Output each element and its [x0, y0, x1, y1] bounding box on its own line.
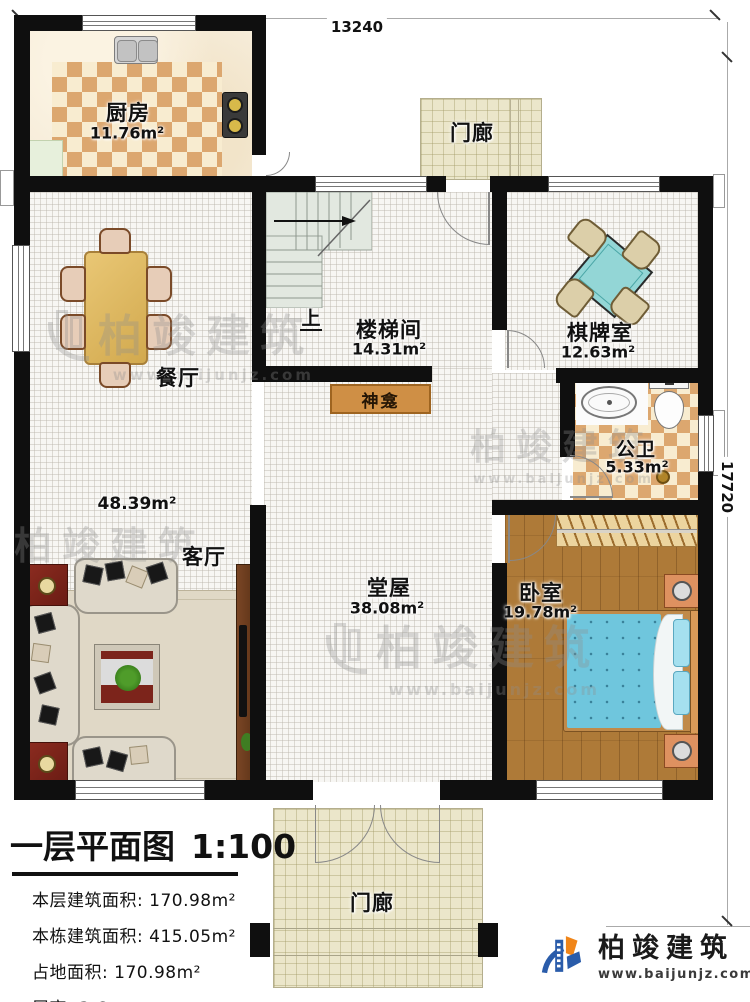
window-stairwell — [315, 176, 427, 192]
label-hall: 堂屋 — [367, 572, 411, 602]
wall-stair-left — [252, 192, 266, 382]
window-bedroom — [536, 780, 663, 800]
side-table — [24, 742, 68, 784]
label-stairwell-area: 14.31m² — [352, 340, 426, 359]
window-dining — [12, 245, 30, 352]
wall-left-lower — [14, 352, 30, 800]
wall-top-band-west — [14, 176, 315, 192]
window-sill — [0, 170, 14, 206]
wall-bedroom-left — [492, 563, 507, 800]
label-bathroom-area: 5.33m² — [605, 458, 668, 477]
sofa-pillow — [82, 746, 103, 767]
window-living — [75, 780, 205, 800]
door-entry-top-leaf — [488, 192, 490, 245]
label-chess-area: 12.63m² — [561, 343, 635, 362]
wall-stair-bottom — [252, 366, 432, 382]
porch-top-joint — [518, 98, 519, 178]
dining-chair — [146, 314, 172, 350]
window-chess — [548, 176, 660, 192]
dining-table — [84, 251, 148, 365]
wall-bottom-4 — [663, 780, 713, 800]
stat-footprint-area: 占地面积: 170.98m² — [32, 958, 296, 983]
sofa-pillow — [129, 745, 149, 765]
dining-chair — [146, 266, 172, 302]
wall-top-band-stub — [427, 176, 446, 192]
plan-title: 一层平面图 — [10, 820, 175, 868]
sofa-pillow — [31, 643, 51, 663]
wall-bath-left — [560, 383, 575, 457]
wall-right-upper — [698, 176, 713, 415]
bed-pillow — [673, 619, 690, 667]
label-kitchen-area: 11.76m² — [90, 124, 164, 143]
coffee-table — [94, 644, 160, 710]
wall-living-hall — [250, 505, 266, 785]
tv — [239, 625, 247, 717]
plant — [115, 665, 141, 691]
window-bathroom — [698, 415, 714, 472]
brand-logo: 柏竣建筑 www.baijunjz.com — [540, 926, 750, 982]
wall-kitchen-right — [252, 15, 266, 155]
wall-chess-bath — [556, 368, 713, 383]
bed — [563, 610, 703, 732]
dining-chair — [99, 228, 131, 254]
bathroom-sink — [581, 386, 637, 419]
title-underline — [12, 872, 238, 876]
window-sill — [713, 174, 725, 208]
plan-scale: 1:100 — [191, 827, 296, 866]
stairs-up-label: 上 — [301, 304, 320, 331]
door-bedroom-leaf — [508, 515, 510, 563]
shrine: 神龛 — [330, 384, 431, 414]
title-block: 一层平面图 1:100 本层建筑面积: 170.98m² 本栋建筑面积: 415… — [10, 820, 296, 1002]
kitchen-sink — [114, 36, 158, 64]
wall-bath-bottom — [492, 500, 713, 515]
kitchen-counter — [29, 140, 63, 178]
nightstand — [664, 734, 700, 768]
porch-pillar-right — [478, 923, 498, 957]
wall-left-upper — [14, 15, 30, 245]
stat-floor-height: 层高: 3.6m — [32, 994, 296, 1002]
label-living: 客厅 — [182, 541, 226, 571]
bed-pillow — [673, 671, 690, 715]
label-kitchen: 厨房 — [106, 97, 150, 127]
shrine-label: 神龛 — [362, 387, 400, 412]
porch-step-line — [273, 955, 481, 956]
staircase — [266, 192, 372, 308]
label-dining: 餐厅 — [156, 362, 200, 392]
window-kitchen — [82, 15, 196, 31]
brand-logo-icon — [540, 928, 590, 980]
wardrobe — [556, 513, 698, 547]
sofa-pillow — [105, 561, 126, 582]
door-chess-leaf — [507, 330, 509, 368]
wall-bottom-2 — [205, 780, 313, 800]
label-living-area: 48.39m² — [98, 494, 177, 514]
dining-chair — [60, 266, 86, 302]
sofa-pillow — [82, 564, 103, 585]
brand-name: 柏竣建筑 — [598, 926, 750, 965]
floor-plan: 13240 17720 — [0, 0, 750, 1002]
dimension-top-value: 13240 — [327, 18, 387, 36]
porch-step-line — [273, 928, 481, 929]
wall-right-lower — [698, 472, 713, 800]
label-bedroom-area: 19.78m² — [503, 603, 577, 622]
label-porch-top: 门廊 — [450, 117, 494, 147]
bed-blanket — [567, 614, 661, 728]
brand-site: www.baijunjz.com — [598, 967, 750, 982]
stat-floor-area: 本层建筑面积: 170.98m² — [32, 886, 296, 911]
label-porch-bottom: 门廊 — [350, 887, 394, 917]
wall-chess-left — [492, 192, 507, 330]
door-bathroom-leaf — [570, 496, 613, 498]
stairs-up-underline — [300, 329, 322, 331]
dimension-right-value: 17720 — [718, 457, 736, 517]
sofa-pillow — [38, 704, 59, 725]
kitchen-stove — [222, 92, 248, 138]
dining-chair — [60, 314, 86, 350]
corridor-floor — [492, 373, 562, 502]
porch-top-joint — [510, 98, 511, 178]
stat-building-area: 本栋建筑面积: 415.05m² — [32, 922, 296, 947]
door-kitchen — [266, 152, 290, 176]
wall-bottom-1 — [14, 780, 75, 800]
dining-chair — [99, 362, 131, 388]
nightstand — [664, 574, 700, 608]
label-hall-area: 38.08m² — [350, 599, 424, 618]
side-table — [24, 564, 68, 606]
wall-bottom-3 — [440, 780, 536, 800]
